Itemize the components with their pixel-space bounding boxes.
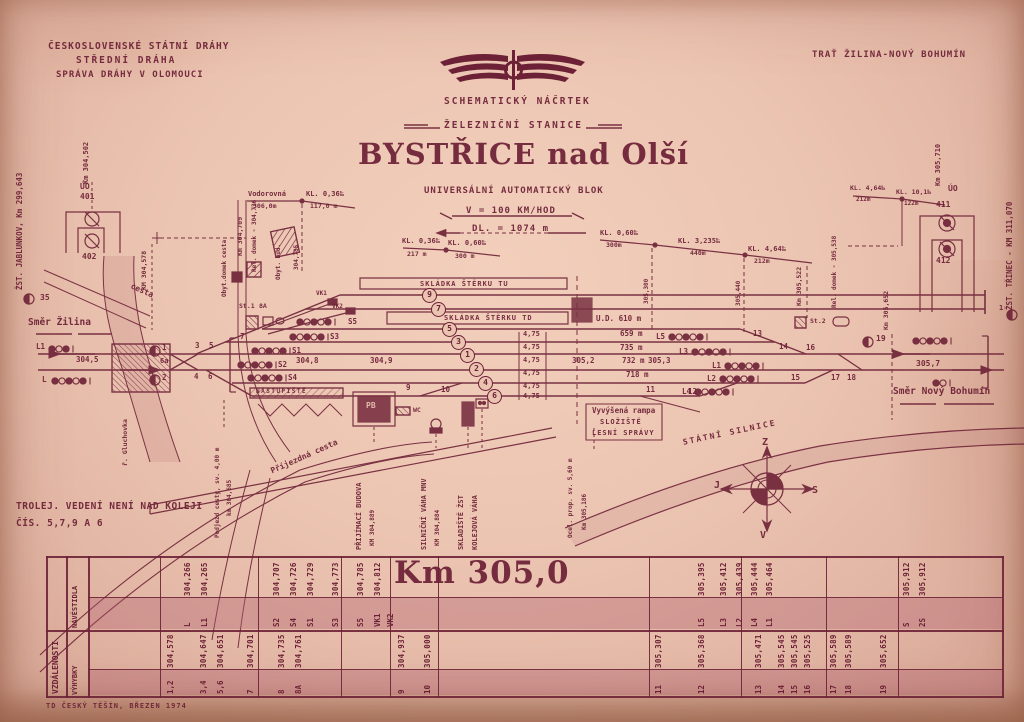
switch-name: 16 (803, 672, 812, 694)
distance-table: VZDÁLENOSTI NÁVĚSTIDLA VÝHYBKY Km 305,0 … (0, 0, 1024, 722)
signal-name: L1 (765, 601, 774, 627)
signal-name: L (183, 601, 192, 627)
table-row1-header: NÁVĚSTIDLA (71, 558, 79, 628)
switch-km-value: 305,000 (423, 633, 432, 668)
switch-name: 8 (277, 672, 286, 694)
signal-name: L2 (735, 601, 744, 627)
signal-name: VK2 (386, 601, 395, 627)
switch-km-value: 305,368 (697, 633, 706, 668)
switch-km-value: 304,937 (397, 633, 406, 668)
switch-name: 7 (246, 672, 255, 694)
table-row2-header: VÝHYBKY (71, 633, 79, 695)
signal-km-value: 304,265 (200, 559, 209, 596)
signal-name: S1 (306, 601, 315, 627)
signal-km-value: 305,464 (765, 559, 774, 596)
switch-name: 8A (294, 672, 303, 694)
signal-km-value: 304,785 (356, 559, 365, 596)
signal-name: S4 (289, 601, 298, 627)
signal-km-value: 305,912 (918, 559, 927, 596)
switch-km-value: 305,545 (777, 633, 786, 668)
signal-km-value: 304,812 (373, 559, 382, 596)
switch-name: 18 (844, 672, 853, 694)
signal-km-value: 305,439 (735, 559, 744, 596)
switch-km-value: 304,578 (166, 633, 175, 668)
signal-name: S5 (356, 601, 365, 627)
switch-name: 3,4 (199, 672, 208, 694)
switch-name: 10 (423, 672, 432, 694)
signal-km-value: 304,707 (272, 559, 281, 596)
switch-name: 13 (754, 672, 763, 694)
signal-name: L4 (750, 601, 759, 627)
switch-km-value: 304,761 (294, 633, 303, 668)
switch-km-value: 304,735 (277, 633, 286, 668)
switch-name: 14 (777, 672, 786, 694)
switch-km-value: 305,545 (790, 633, 799, 668)
switch-km-value: 305,525 (803, 633, 812, 668)
switch-name: 19 (879, 672, 888, 694)
signal-name: 2S (918, 601, 927, 627)
signal-km-value: 304,729 (306, 559, 315, 596)
signal-name: S (902, 601, 911, 627)
switch-name: 1,2 (166, 672, 175, 694)
switch-name: 5,6 (216, 672, 225, 694)
signal-name: L3 (719, 601, 728, 627)
signal-km-value: 305,912 (902, 559, 911, 596)
switch-name: 15 (790, 672, 799, 694)
signal-km-value: 304,266 (183, 559, 192, 596)
switch-km-value: 304,701 (246, 633, 255, 668)
switch-km-value: 304,651 (216, 633, 225, 668)
switch-km-value: 304,647 (199, 633, 208, 668)
signal-name: L5 (697, 601, 706, 627)
switch-km-value: 305,471 (754, 633, 763, 668)
signal-name: S3 (331, 601, 340, 627)
switch-km-value: 305,589 (829, 633, 838, 668)
km-305-0-heading: Km 305,0 (394, 556, 570, 592)
table-group-header: VZDÁLENOSTI (51, 560, 60, 694)
signal-km-value: 305,444 (750, 559, 759, 596)
signal-km-value: 304,726 (289, 559, 298, 596)
switch-name: 17 (829, 672, 838, 694)
signal-km-value: 304,773 (331, 559, 340, 596)
switch-name: 11 (654, 672, 663, 694)
imprint: TD ČESKÝ TĚŠÍN, BŘEZEN 1974 (46, 702, 187, 710)
signal-name: VK1 (373, 601, 382, 627)
switch-km-value: 305,652 (879, 633, 888, 668)
switch-km-value: 305,307 (654, 633, 663, 668)
switch-name: 12 (697, 672, 706, 694)
signal-km-value: 305,412 (719, 559, 728, 596)
switch-km-value: 305,589 (844, 633, 853, 668)
signal-name: S2 (272, 601, 281, 627)
switch-name: 9 (397, 672, 406, 694)
station-schematic-scan: ČESKOSLOVENSKÉ STÁTNÍ DRÁHY STŘEDNÍ DRÁH… (0, 0, 1024, 722)
signal-km-value: 305,395 (697, 559, 706, 596)
signal-name: L1 (200, 601, 209, 627)
